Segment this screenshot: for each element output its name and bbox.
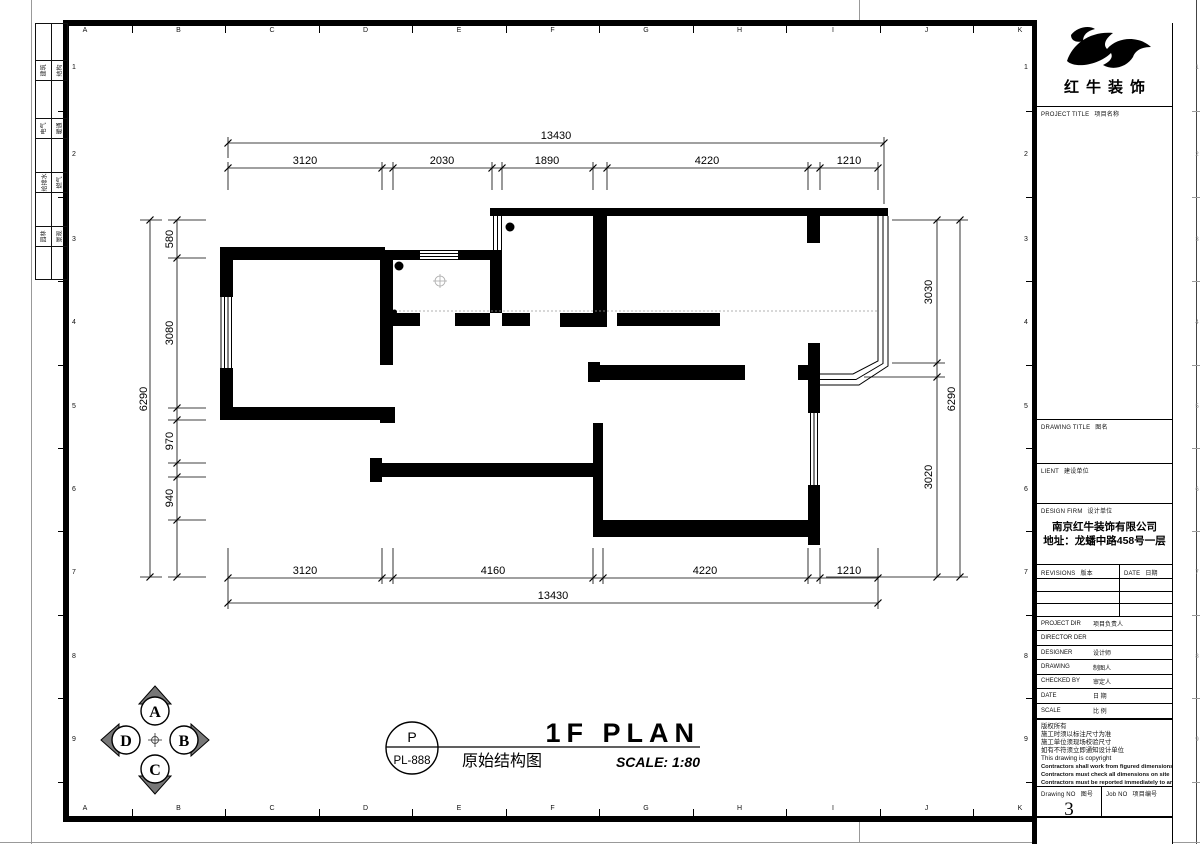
field-label-en: DESIGNER bbox=[1037, 650, 1093, 656]
revision-cell bbox=[1037, 592, 1120, 604]
field-client: LIENT建设单位 bbox=[1037, 464, 1172, 504]
title-block-field-row: SCALE比 例 bbox=[1037, 704, 1172, 718]
design-firm-label-cn: 设计单位 bbox=[1088, 509, 1113, 515]
note-line: 如有不符须立即通知设计单位 bbox=[1041, 747, 1172, 755]
revision-row bbox=[1037, 579, 1172, 592]
project-title-label-en: PROJECT TITLE bbox=[1041, 112, 1089, 118]
orientation-compass: A B C D bbox=[101, 686, 209, 794]
dim-label: 1210 bbox=[837, 565, 861, 577]
compass-letter-b: B bbox=[179, 733, 190, 750]
title-block-field-row: DATE日 期 bbox=[1037, 689, 1172, 703]
field-label-en: DIRECTOR DER bbox=[1037, 635, 1093, 641]
note-line: Contractors shall work from figured dime… bbox=[1041, 763, 1172, 771]
job-no-label-cn: 项目编号 bbox=[1133, 792, 1158, 798]
revisions-table: REVISIONS版本 DATE日期 bbox=[1037, 565, 1172, 617]
dim-left-overall: 6290 bbox=[138, 387, 150, 411]
field-label-en: CHECKED BY bbox=[1037, 678, 1093, 684]
title-block-logo: 红牛装饰 bbox=[1037, 23, 1172, 107]
drawing-no-label-cn: 图号 bbox=[1081, 792, 1093, 798]
compass-letter-d: D bbox=[120, 733, 132, 750]
floor-plan-canvas: 13430 3120 2030 1890 4220 1210 3120 4160… bbox=[0, 0, 1200, 844]
dim-top-overall: 13430 bbox=[541, 130, 572, 142]
field-label-cn: 日 期 bbox=[1093, 691, 1107, 700]
dimension-lines bbox=[140, 137, 968, 609]
field-label-en: PROJECT DIR bbox=[1037, 621, 1093, 627]
dim-label: 3030 bbox=[923, 280, 935, 304]
sheet-badge-letter: P bbox=[407, 729, 416, 745]
note-line: Contractors must be reported immediately… bbox=[1041, 779, 1172, 787]
dim-label: 3080 bbox=[164, 321, 176, 345]
field-label-en: DRAWING bbox=[1037, 664, 1093, 670]
revisions-label-cn: 版本 bbox=[1080, 571, 1092, 577]
project-title-label-cn: 项目名称 bbox=[1094, 112, 1119, 118]
sheet-title-group: P PL-888 1F PLAN 原始结构图 SCALE: 1:80 bbox=[386, 718, 700, 774]
revision-cell bbox=[1037, 604, 1120, 617]
dim-label: 940 bbox=[164, 489, 176, 507]
brand-logo-icon bbox=[1037, 23, 1172, 71]
dim-label: 4220 bbox=[695, 155, 719, 167]
field-design-firm: DESIGN FIRM设计单位 南京红牛装饰有限公司 地址：龙蟠中路458号一层 bbox=[1037, 504, 1172, 565]
dim-label: 2030 bbox=[430, 155, 454, 167]
field-drawing-title: DRAWING TITLE图名 bbox=[1037, 420, 1172, 464]
sheet-title-cn: 原始结构图 bbox=[462, 752, 542, 770]
title-block-fields: PROJECT DIR项目负责人DIRECTOR DERDESIGNER设计师D… bbox=[1037, 617, 1172, 718]
copyright-notes: 版权所有施工时须以标注尺寸为准施工单位须现场校验尺寸如有不符须立即通知设计单位T… bbox=[1037, 720, 1172, 787]
floor-plan-walls bbox=[220, 208, 888, 545]
title-block-field-row: DESIGNER设计师 bbox=[1037, 646, 1172, 660]
revision-cell bbox=[1037, 579, 1120, 591]
center-symbol bbox=[433, 274, 447, 288]
revision-row bbox=[1037, 592, 1172, 605]
field-label-en: SCALE bbox=[1037, 708, 1093, 714]
date-col-label-cn: 日期 bbox=[1145, 571, 1157, 577]
dim-label: 3020 bbox=[923, 465, 935, 489]
design-firm-name: 南京红牛装饰有限公司 bbox=[1037, 520, 1172, 534]
design-firm-label-en: DESIGN FIRM bbox=[1041, 509, 1083, 515]
design-firm-address: 地址：龙蟠中路458号一层 bbox=[1037, 534, 1172, 548]
sheet-badge-code: PL-888 bbox=[393, 755, 430, 767]
drawing-title-label-cn: 图名 bbox=[1095, 425, 1107, 431]
client-label-en: LIENT bbox=[1041, 469, 1059, 475]
drawing-title-label-en: DRAWING TITLE bbox=[1041, 425, 1090, 431]
compass-letter-a: A bbox=[149, 704, 161, 721]
note-line: 施工时须以标注尺寸为准 bbox=[1041, 731, 1172, 739]
field-project-title: PROJECT TITLE项目名称 bbox=[1037, 107, 1172, 420]
note-line: This drawing is copyright bbox=[1041, 755, 1172, 763]
field-label-cn: 审定人 bbox=[1093, 677, 1111, 686]
drawing-sheet: AABBCCDDEEFFGGHHIIJJKK111222333444555666… bbox=[0, 0, 1200, 844]
job-no-label-en: Job NO bbox=[1106, 792, 1128, 798]
drawing-no-label-en: Drawing NO bbox=[1041, 792, 1076, 798]
brand-name: 红牛装饰 bbox=[1037, 76, 1172, 97]
revision-row bbox=[1037, 604, 1172, 617]
title-block-field-row: PROJECT DIR项目负责人 bbox=[1037, 617, 1172, 631]
sheet-scale-note: SCALE: 1:80 bbox=[616, 754, 700, 770]
dim-label: 3120 bbox=[293, 155, 317, 167]
title-block-field-row: CHECKED BY审定人 bbox=[1037, 675, 1172, 689]
dimension-labels: 13430 3120 2030 1890 4220 1210 3120 4160… bbox=[138, 130, 958, 602]
dim-bottom-overall: 13430 bbox=[538, 590, 569, 602]
drawing-no-value: 3 bbox=[1037, 799, 1101, 818]
client-label-cn: 建设单位 bbox=[1064, 469, 1089, 475]
compass-letter-c: C bbox=[149, 762, 161, 779]
title-block-field-row: DRAWING制图人 bbox=[1037, 660, 1172, 674]
revisions-label-en: REVISIONS bbox=[1041, 571, 1075, 577]
dim-label: 4160 bbox=[481, 565, 505, 577]
dim-label: 1890 bbox=[535, 155, 559, 167]
title-block: 红牛装饰 PROJECT TITLE项目名称 DRAWING TITLE图名 L… bbox=[1037, 23, 1173, 844]
dim-label: 3120 bbox=[293, 565, 317, 577]
field-label-cn: 制图人 bbox=[1093, 663, 1111, 672]
field-label-cn: 设计师 bbox=[1093, 648, 1111, 657]
dim-label: 580 bbox=[164, 230, 176, 248]
field-label-cn: 比 例 bbox=[1093, 706, 1107, 715]
note-line: 版权所有 bbox=[1041, 723, 1172, 731]
field-label-en: DATE bbox=[1037, 693, 1093, 699]
dim-label: 4220 bbox=[693, 565, 717, 577]
dim-label: 1210 bbox=[837, 155, 861, 167]
note-line: Contractors must check all dimensions on… bbox=[1041, 771, 1172, 779]
field-label-cn: 项目负责人 bbox=[1093, 619, 1123, 628]
date-col-label-en: DATE bbox=[1124, 571, 1140, 577]
sheet-title-en: 1F PLAN bbox=[545, 718, 700, 748]
title-block-field-row: DIRECTOR DER bbox=[1037, 631, 1172, 645]
note-line: 施工单位须现场校验尺寸 bbox=[1041, 739, 1172, 747]
dim-label: 970 bbox=[164, 432, 176, 450]
dim-right-overall: 6290 bbox=[946, 387, 958, 411]
drawing-number-row: Drawing NO图号 3 Job NO项目编号 bbox=[1037, 787, 1172, 818]
